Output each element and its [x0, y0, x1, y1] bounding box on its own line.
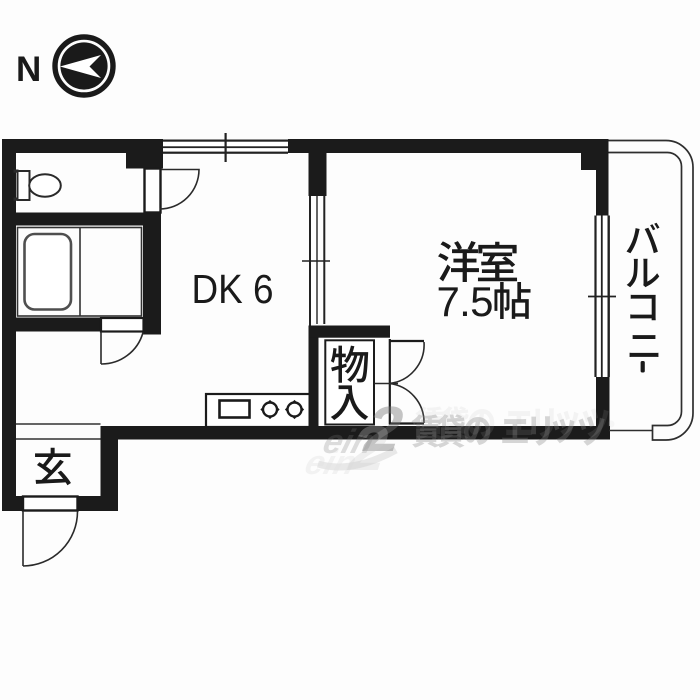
svg-text:N: N [16, 50, 41, 89]
svg-text:DK 6: DK 6 [192, 266, 274, 312]
svg-text:7.5: 7.5 [437, 278, 494, 325]
